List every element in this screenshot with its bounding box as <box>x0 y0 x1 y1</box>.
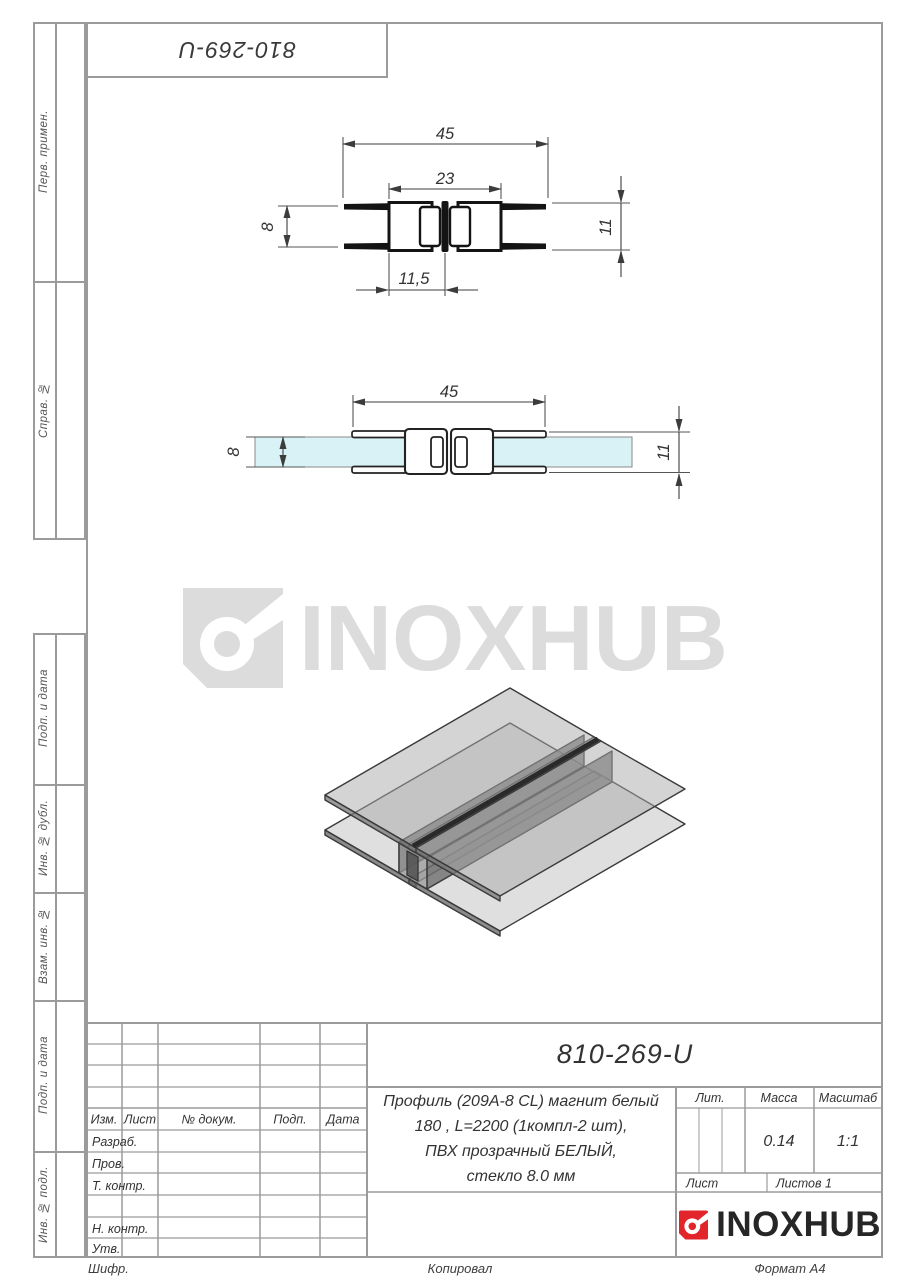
sidebar-divider <box>33 892 86 894</box>
sidebar-divider <box>33 281 86 283</box>
sidebar-divider <box>33 1151 86 1153</box>
revision-table-headers: Изм. Лист № докум. Подп. Дата <box>91 1113 360 1127</box>
header-data: Дата <box>325 1113 360 1127</box>
label-listov: Листов 1 <box>775 1177 832 1191</box>
value-masshtab: 1:1 <box>837 1133 859 1150</box>
header-izm: Изм. <box>91 1113 118 1127</box>
sidebar-divider <box>33 1000 86 1002</box>
row-prov: Пров. <box>92 1157 125 1171</box>
sidebar-group-bottom <box>33 633 86 1258</box>
header-list: Лист <box>123 1113 156 1127</box>
row-razrab: Разраб. <box>92 1135 137 1149</box>
description-line-1: Профиль (209А-8 CL) магнит белый <box>383 1093 659 1110</box>
label-list: Лист <box>685 1177 718 1191</box>
title-doc-number: 810-269-U <box>557 1039 694 1069</box>
description-line-2: 180 , L=2200 (1компл-2 шт), <box>415 1118 628 1135</box>
company-logo: INOXHUB <box>679 1194 881 1256</box>
company-logo-text: INOXHUB <box>716 1205 881 1245</box>
sidebar-divider <box>33 784 86 786</box>
sidebar-divider <box>55 633 57 1258</box>
header-podp: Подп. <box>273 1113 306 1127</box>
header-dokum: № докум. <box>181 1113 236 1127</box>
description: Профиль (209А-8 CL) магнит белый 180 , L… <box>383 1093 659 1185</box>
company-logo-icon <box>679 1202 708 1248</box>
drawing-sheet: { "top_box": { "number": "810-269-U" }, … <box>0 0 905 1280</box>
row-tkontr: Т. контр. <box>92 1179 146 1193</box>
top-doc-number: 810-269-U <box>86 22 388 78</box>
footer-cipher: Шифр. <box>88 1261 129 1276</box>
label-massa: Масса <box>761 1091 798 1105</box>
value-massa: 0.14 <box>763 1133 794 1150</box>
label-masshtab: Масштаб <box>819 1091 878 1105</box>
row-nkontr: Н. контр. <box>92 1222 148 1236</box>
row-utv: Утв. <box>91 1242 120 1256</box>
label-lit: Лит. <box>694 1091 724 1105</box>
footer-format: Формат А4 <box>730 1261 850 1276</box>
description-line-3: ПВХ прозрачный БЕЛЫЙ, <box>425 1141 617 1160</box>
footer-copied: Копировал <box>395 1261 525 1276</box>
description-line-4: стекло 8.0 мм <box>467 1168 576 1185</box>
